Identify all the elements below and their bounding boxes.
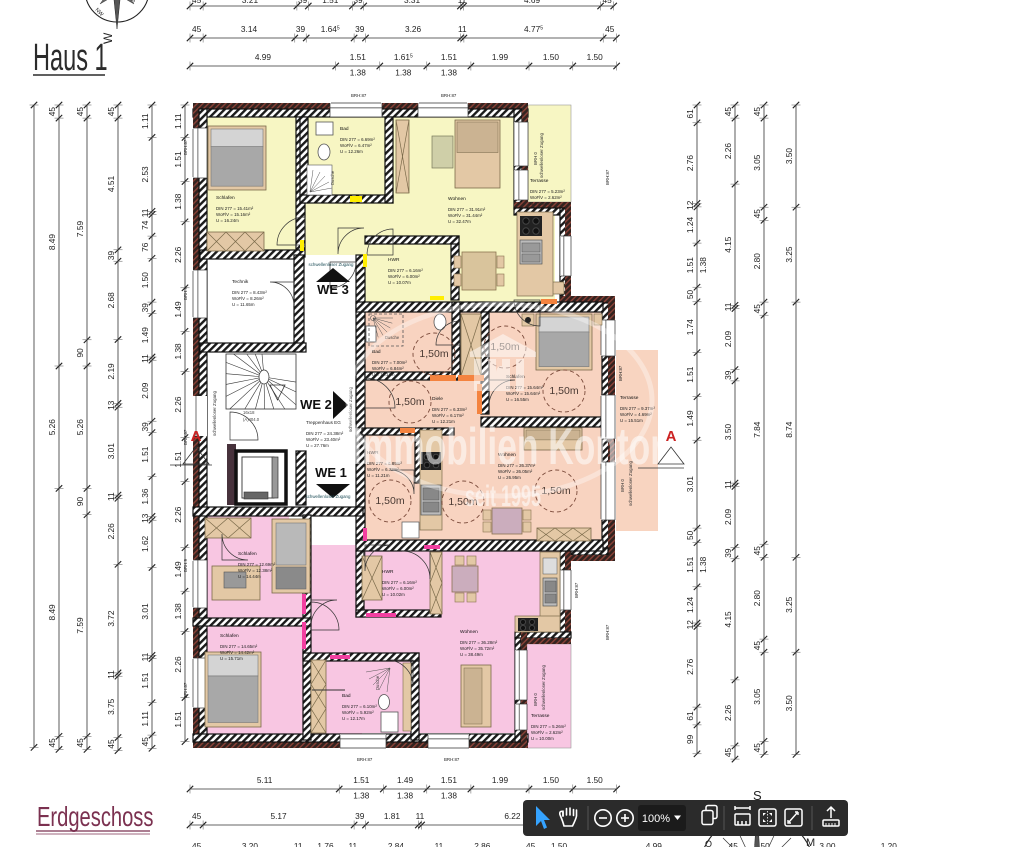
svg-text:11: 11 bbox=[458, 24, 467, 34]
svg-text:1.51: 1.51 bbox=[140, 446, 150, 463]
svg-text:11: 11 bbox=[294, 841, 303, 847]
svg-text:2.26: 2.26 bbox=[173, 506, 183, 523]
svg-text:U = 9.98m: U = 9.98m bbox=[530, 201, 551, 206]
svg-text:2.76: 2.76 bbox=[685, 155, 695, 172]
svg-text:WoFlV = 6.00m²: WoFlV = 6.00m² bbox=[388, 274, 420, 279]
svg-text:1.49: 1.49 bbox=[173, 301, 183, 318]
svg-text:2.26: 2.26 bbox=[106, 523, 116, 540]
svg-text:3.20: 3.20 bbox=[242, 841, 259, 847]
svg-text:1.50: 1.50 bbox=[587, 52, 604, 62]
svg-text:45: 45 bbox=[192, 841, 202, 847]
svg-text:WE 2: WE 2 bbox=[300, 397, 332, 412]
svg-text:1.99: 1.99 bbox=[492, 775, 509, 785]
svg-text:1.99: 1.99 bbox=[492, 52, 509, 62]
svg-text:11: 11 bbox=[106, 492, 116, 501]
svg-text:3.25: 3.25 bbox=[784, 596, 794, 613]
svg-text:5.26: 5.26 bbox=[47, 419, 57, 436]
svg-text:1.51: 1.51 bbox=[685, 257, 695, 274]
svg-text:2.84: 2.84 bbox=[388, 841, 405, 847]
svg-text:8.49: 8.49 bbox=[47, 604, 57, 621]
svg-text:39: 39 bbox=[296, 24, 306, 34]
svg-text:3.72: 3.72 bbox=[106, 610, 116, 627]
svg-text:45: 45 bbox=[192, 0, 202, 5]
svg-text:11: 11 bbox=[140, 354, 150, 363]
svg-text:DIN 277 = 15.41m²: DIN 277 = 15.41m² bbox=[216, 206, 254, 211]
svg-text:3.01: 3.01 bbox=[685, 476, 695, 493]
svg-text:Diele: Diele bbox=[432, 396, 443, 402]
svg-text:U = 11.65m: U = 11.65m bbox=[232, 302, 255, 307]
svg-text:BRH:87: BRH:87 bbox=[605, 624, 610, 640]
svg-text:(A)404.0: (A)404.0 bbox=[243, 417, 260, 422]
svg-text:DIN 277 = 6.69m²: DIN 277 = 6.69m² bbox=[340, 137, 375, 142]
svg-text:U = 27.76m: U = 27.76m bbox=[306, 443, 329, 448]
svg-text:BRH 0: BRH 0 bbox=[533, 693, 538, 706]
svg-text:2.09: 2.09 bbox=[723, 508, 733, 525]
svg-text:BRH:9: BRH:9 bbox=[183, 559, 188, 572]
svg-text:45: 45 bbox=[75, 107, 85, 117]
svg-text:8.74: 8.74 bbox=[784, 421, 794, 438]
svg-text:Haus 1: Haus 1 bbox=[33, 35, 108, 78]
svg-text:DIN 277 = 36.28m²: DIN 277 = 36.28m² bbox=[460, 640, 498, 645]
svg-text:U = 16.24m: U = 16.24m bbox=[216, 218, 239, 223]
svg-text:1.24: 1.24 bbox=[685, 217, 695, 234]
svg-text:1.51: 1.51 bbox=[173, 151, 183, 168]
svg-text:4.15: 4.15 bbox=[723, 611, 733, 628]
svg-text:2.26: 2.26 bbox=[723, 143, 733, 160]
svg-text:16x18: 16x18 bbox=[243, 410, 255, 415]
svg-text:U = 14.44m: U = 14.44m bbox=[238, 574, 261, 579]
svg-text:99: 99 bbox=[685, 734, 695, 744]
svg-text:schwellenloser Zugang: schwellenloser Zugang bbox=[212, 391, 217, 436]
svg-text:1.36: 1.36 bbox=[140, 488, 150, 505]
svg-text:45: 45 bbox=[752, 743, 762, 753]
svg-text:1,50m: 1,50m bbox=[419, 348, 448, 360]
svg-text:45: 45 bbox=[723, 107, 733, 117]
svg-text:U = 10.00m: U = 10.00m bbox=[531, 736, 554, 741]
svg-text:DIN 277 = 6.10m²: DIN 277 = 6.10m² bbox=[342, 704, 377, 709]
svg-text:WE 1: WE 1 bbox=[315, 465, 347, 480]
svg-text:1.11: 1.11 bbox=[140, 711, 150, 727]
svg-text:7.59: 7.59 bbox=[75, 221, 85, 238]
svg-text:45: 45 bbox=[752, 304, 762, 314]
svg-text:1.49: 1.49 bbox=[140, 327, 150, 344]
svg-text:U = 16.55m: U = 16.55m bbox=[506, 397, 529, 402]
svg-text:DIN 277 = 5.26m²: DIN 277 = 5.26m² bbox=[531, 724, 566, 729]
svg-text:U = 10.07m: U = 10.07m bbox=[388, 280, 411, 285]
svg-text:2.26: 2.26 bbox=[173, 396, 183, 413]
svg-text:1.51: 1.51 bbox=[353, 775, 370, 785]
svg-text:2.80: 2.80 bbox=[752, 253, 762, 270]
svg-text:3.05: 3.05 bbox=[752, 154, 762, 171]
svg-text:WE 3: WE 3 bbox=[317, 282, 349, 297]
svg-text:74: 74 bbox=[140, 220, 150, 230]
svg-text:11: 11 bbox=[723, 302, 733, 311]
svg-text:90: 90 bbox=[75, 497, 85, 507]
svg-text:11: 11 bbox=[458, 0, 467, 5]
svg-text:schwellenloser Zugang: schwellenloser Zugang bbox=[306, 494, 351, 499]
svg-text:BRH:87: BRH:87 bbox=[605, 169, 610, 185]
svg-text:1.49: 1.49 bbox=[685, 410, 695, 427]
svg-text:1.62: 1.62 bbox=[140, 535, 150, 552]
svg-text:DIN 277 = 8.43m²: DIN 277 = 8.43m² bbox=[232, 290, 267, 295]
svg-text:BRH:87: BRH:87 bbox=[444, 757, 460, 762]
svg-text:2.26: 2.26 bbox=[173, 656, 183, 673]
svg-text:6.22: 6.22 bbox=[504, 811, 521, 821]
svg-text:5.17: 5.17 bbox=[271, 811, 288, 821]
svg-text:11: 11 bbox=[140, 208, 150, 217]
svg-text:50: 50 bbox=[685, 290, 695, 300]
svg-text:4.51: 4.51 bbox=[106, 176, 116, 193]
svg-text:Erdgeschoss: Erdgeschoss bbox=[37, 802, 153, 833]
svg-text:45: 45 bbox=[140, 737, 150, 747]
svg-text:schwellenloser Zugang: schwellenloser Zugang bbox=[309, 262, 354, 267]
svg-text:1,50m: 1,50m bbox=[375, 495, 404, 507]
svg-text:1.51: 1.51 bbox=[441, 52, 458, 62]
svg-text:DIN 277 = 15.64m²: DIN 277 = 15.64m² bbox=[506, 385, 544, 390]
svg-text:1.51: 1.51 bbox=[140, 672, 150, 689]
svg-text:WoFlV = 2.62m²: WoFlV = 2.62m² bbox=[530, 195, 562, 200]
svg-text:DIN 277 = 7.00m²: DIN 277 = 7.00m² bbox=[372, 360, 407, 365]
svg-text:1.38: 1.38 bbox=[173, 193, 183, 210]
svg-text:Immobilien Kontor: Immobilien Kontor bbox=[352, 418, 664, 476]
svg-text:WoFlV = 31.44m²: WoFlV = 31.44m² bbox=[448, 213, 483, 218]
svg-text:45: 45 bbox=[729, 841, 739, 847]
svg-text:U = 11.14m: U = 11.14m bbox=[372, 372, 395, 377]
svg-text:schwellenloser Zugang: schwellenloser Zugang bbox=[539, 133, 544, 178]
svg-text:8.49: 8.49 bbox=[47, 234, 57, 251]
svg-text:1.50: 1.50 bbox=[543, 775, 560, 785]
svg-text:2.80: 2.80 bbox=[752, 590, 762, 607]
svg-text:U = 38.49m: U = 38.49m bbox=[460, 652, 483, 657]
svg-text:WoFlV = 14.42m²: WoFlV = 14.42m² bbox=[220, 650, 255, 655]
svg-text:3.50: 3.50 bbox=[784, 695, 794, 712]
svg-text:1.49: 1.49 bbox=[397, 775, 414, 785]
svg-text:DIN 277 = 6.16m²: DIN 277 = 6.16m² bbox=[388, 268, 423, 273]
svg-text:Wohnen: Wohnen bbox=[460, 629, 478, 635]
svg-text:45: 45 bbox=[106, 107, 116, 117]
svg-text:45: 45 bbox=[47, 107, 57, 117]
svg-text:3.50: 3.50 bbox=[784, 148, 794, 165]
svg-text:BRH:87: BRH:87 bbox=[351, 93, 367, 98]
svg-text:WoFlV = 5.92m²: WoFlV = 5.92m² bbox=[342, 710, 374, 715]
svg-text:3.14: 3.14 bbox=[241, 24, 258, 34]
svg-text:Schlafen: Schlafen bbox=[220, 633, 239, 639]
svg-text:1.50: 1.50 bbox=[140, 272, 150, 289]
svg-text:WoFlV = 15.16m²: WoFlV = 15.16m² bbox=[216, 212, 251, 217]
svg-text:Terrasse: Terrasse bbox=[620, 395, 639, 401]
svg-text:1.50: 1.50 bbox=[543, 52, 560, 62]
svg-text:O: O bbox=[705, 839, 712, 847]
svg-text:2.09: 2.09 bbox=[140, 382, 150, 399]
svg-text:11: 11 bbox=[416, 811, 425, 821]
svg-text:1.51: 1.51 bbox=[173, 711, 183, 728]
svg-text:39: 39 bbox=[140, 303, 150, 313]
svg-text:45: 45 bbox=[526, 841, 536, 847]
svg-text:11: 11 bbox=[140, 652, 150, 661]
svg-text:Bad: Bad bbox=[342, 693, 351, 699]
svg-text:M: M bbox=[806, 837, 815, 847]
svg-text:100%: 100% bbox=[642, 813, 670, 825]
svg-text:5.11: 5.11 bbox=[257, 775, 273, 785]
svg-text:U = 12.26m: U = 12.26m bbox=[340, 149, 363, 154]
svg-text:1.38: 1.38 bbox=[441, 68, 458, 78]
svg-text:1.38: 1.38 bbox=[350, 68, 367, 78]
svg-text:45: 45 bbox=[106, 739, 116, 749]
svg-text:WoFlV = 12.38m²: WoFlV = 12.38m² bbox=[238, 568, 273, 573]
svg-text:1.38: 1.38 bbox=[173, 603, 183, 620]
svg-text:DIN 277 = 24.38m²: DIN 277 = 24.38m² bbox=[306, 431, 344, 436]
svg-text:BRH:9: BRH:9 bbox=[183, 287, 188, 300]
svg-text:1.38: 1.38 bbox=[698, 257, 708, 274]
svg-text:45: 45 bbox=[47, 738, 57, 748]
svg-text:BRH:87: BRH:87 bbox=[574, 582, 579, 598]
svg-text:39: 39 bbox=[355, 24, 365, 34]
svg-text:90: 90 bbox=[75, 348, 85, 358]
svg-text:39: 39 bbox=[723, 370, 733, 380]
svg-text:3.01: 3.01 bbox=[140, 603, 150, 620]
svg-text:45: 45 bbox=[602, 0, 612, 5]
svg-text:1,50m: 1,50m bbox=[395, 396, 424, 408]
svg-text:39: 39 bbox=[140, 422, 150, 432]
svg-text:13: 13 bbox=[106, 400, 116, 410]
svg-text:1.50: 1.50 bbox=[551, 841, 568, 847]
svg-text:BRH:87: BRH:87 bbox=[357, 757, 373, 762]
svg-text:2.26: 2.26 bbox=[173, 246, 183, 263]
svg-text:Schlafen: Schlafen bbox=[216, 195, 235, 201]
svg-text:Schlafen: Schlafen bbox=[238, 551, 257, 557]
svg-text:Bad: Bad bbox=[340, 126, 349, 132]
svg-text:3.25: 3.25 bbox=[784, 246, 794, 263]
svg-text:1.38: 1.38 bbox=[173, 343, 183, 360]
svg-text:12: 12 bbox=[685, 200, 695, 210]
svg-text:2.19: 2.19 bbox=[106, 363, 116, 380]
svg-text:1.38: 1.38 bbox=[698, 556, 708, 573]
svg-text:1.51: 1.51 bbox=[685, 366, 695, 383]
svg-text:WoFlV = 6.47m²: WoFlV = 6.47m² bbox=[340, 143, 372, 148]
svg-text:3.01: 3.01 bbox=[106, 443, 116, 460]
svg-text:11: 11 bbox=[723, 480, 733, 489]
svg-text:1.49: 1.49 bbox=[173, 561, 183, 578]
svg-text:1.11: 1.11 bbox=[173, 113, 183, 129]
svg-text:Terrasse: Terrasse bbox=[531, 713, 550, 719]
svg-text:WoFlV = 23.40m²: WoFlV = 23.40m² bbox=[306, 437, 341, 442]
svg-text:45: 45 bbox=[605, 24, 615, 34]
svg-text:7.84: 7.84 bbox=[752, 421, 762, 438]
svg-text:1.38: 1.38 bbox=[441, 791, 458, 801]
svg-text:45: 45 bbox=[752, 209, 762, 219]
svg-text:BRH:87: BRH:87 bbox=[183, 429, 188, 445]
svg-text:39: 39 bbox=[106, 251, 116, 261]
svg-text:BRH:87: BRH:87 bbox=[183, 682, 188, 698]
svg-text:BRH:87: BRH:87 bbox=[441, 93, 457, 98]
svg-text:50: 50 bbox=[685, 530, 695, 540]
svg-text:3.21: 3.21 bbox=[242, 0, 259, 5]
svg-text:61: 61 bbox=[685, 109, 695, 119]
svg-text:BRH:87: BRH:87 bbox=[618, 365, 623, 381]
svg-text:4.99: 4.99 bbox=[255, 52, 272, 62]
svg-text:3.05: 3.05 bbox=[752, 688, 762, 705]
svg-text:A: A bbox=[191, 428, 202, 445]
svg-text:45: 45 bbox=[752, 641, 762, 651]
svg-text:DIN 277 = 5.23m²: DIN 277 = 5.23m² bbox=[530, 189, 565, 194]
svg-text:3.50: 3.50 bbox=[723, 424, 733, 441]
svg-text:1.24: 1.24 bbox=[685, 596, 695, 613]
svg-text:4.69: 4.69 bbox=[524, 0, 541, 5]
svg-text:2.09: 2.09 bbox=[723, 331, 733, 348]
svg-text:39: 39 bbox=[723, 548, 733, 558]
svg-text:39: 39 bbox=[355, 811, 365, 821]
svg-text:45: 45 bbox=[75, 738, 85, 748]
svg-text:WoFlV = 6.00m²: WoFlV = 6.00m² bbox=[382, 586, 414, 591]
svg-text:76: 76 bbox=[140, 242, 150, 252]
svg-text:1.51: 1.51 bbox=[685, 556, 695, 573]
svg-text:HWR: HWR bbox=[388, 257, 400, 263]
svg-text:U = 10.02m: U = 10.02m bbox=[382, 592, 405, 597]
svg-text:A: A bbox=[666, 428, 677, 445]
svg-text:2.26: 2.26 bbox=[723, 704, 733, 721]
svg-text:1.51: 1.51 bbox=[441, 775, 458, 785]
svg-text:11: 11 bbox=[106, 670, 116, 679]
svg-text:schwellenloser Zugang: schwellenloser Zugang bbox=[541, 665, 546, 710]
svg-text:4.15: 4.15 bbox=[723, 236, 733, 253]
svg-text:45: 45 bbox=[752, 107, 762, 117]
svg-text:DIN 277 = 6.16m²: DIN 277 = 6.16m² bbox=[382, 580, 417, 585]
svg-text:1.81: 1.81 bbox=[384, 811, 401, 821]
svg-text:45: 45 bbox=[752, 546, 762, 556]
svg-text:2.53: 2.53 bbox=[140, 166, 150, 183]
svg-text:11: 11 bbox=[348, 841, 357, 847]
svg-text:DIN 277 = 12.69m²: DIN 277 = 12.69m² bbox=[238, 562, 276, 567]
svg-text:45: 45 bbox=[723, 748, 733, 758]
svg-text:1.74: 1.74 bbox=[685, 319, 695, 336]
svg-text:2.86: 2.86 bbox=[474, 841, 491, 847]
svg-text:WoFlV = 15.64m²: WoFlV = 15.64m² bbox=[506, 391, 541, 396]
svg-text:1,50m: 1,50m bbox=[549, 385, 578, 397]
svg-text:HWR: HWR bbox=[382, 569, 394, 575]
svg-text:39: 39 bbox=[298, 0, 308, 5]
svg-text:3.26: 3.26 bbox=[405, 24, 422, 34]
svg-text:2.76: 2.76 bbox=[685, 658, 695, 675]
svg-text:1.38: 1.38 bbox=[395, 68, 412, 78]
svg-text:U = 12.17m: U = 12.17m bbox=[342, 716, 365, 721]
svg-text:DIN 277 = 6.33m²: DIN 277 = 6.33m² bbox=[432, 407, 467, 412]
svg-text:DIN 277 = 31.91m²: DIN 277 = 31.91m² bbox=[448, 207, 486, 212]
svg-text:WoFlV = 8.26m²: WoFlV = 8.26m² bbox=[232, 296, 264, 301]
svg-text:5.26: 5.26 bbox=[75, 419, 85, 436]
svg-text:3.31: 3.31 bbox=[404, 0, 421, 5]
svg-text:39: 39 bbox=[353, 0, 363, 5]
svg-text:45: 45 bbox=[192, 811, 202, 821]
svg-text:1.38: 1.38 bbox=[397, 791, 414, 801]
svg-text:1.11: 1.11 bbox=[140, 113, 150, 129]
svg-text:1.76: 1.76 bbox=[317, 841, 334, 847]
svg-text:Treppenhaus EG: Treppenhaus EG bbox=[306, 420, 341, 425]
svg-text:Dusche: Dusche bbox=[330, 170, 335, 185]
svg-text:1.20: 1.20 bbox=[881, 841, 898, 847]
svg-text:1.50: 1.50 bbox=[587, 775, 604, 785]
svg-text:WoFlV = 2.62m²: WoFlV = 2.62m² bbox=[531, 730, 563, 735]
svg-text:1.38: 1.38 bbox=[353, 791, 370, 801]
svg-text:13: 13 bbox=[140, 513, 150, 523]
svg-text:1.51: 1.51 bbox=[350, 52, 367, 62]
svg-text:BRH 0: BRH 0 bbox=[533, 152, 538, 165]
svg-text:12: 12 bbox=[685, 620, 695, 630]
svg-text:1.51: 1.51 bbox=[322, 0, 339, 5]
svg-text:BRH 0: BRH 0 bbox=[620, 479, 625, 492]
svg-text:U = 32.47m: U = 32.47m bbox=[448, 219, 471, 224]
svg-text:Wohnen: Wohnen bbox=[448, 196, 466, 202]
svg-text:seit 1995: seit 1995 bbox=[465, 480, 541, 513]
svg-text:Technik: Technik bbox=[232, 279, 249, 285]
svg-text:2.68: 2.68 bbox=[106, 292, 116, 309]
svg-text:3.00: 3.00 bbox=[819, 841, 836, 847]
svg-text:3.75: 3.75 bbox=[106, 698, 116, 715]
svg-text:BRH:87: BRH:87 bbox=[183, 139, 188, 155]
svg-text:7.59: 7.59 bbox=[75, 617, 85, 634]
svg-text:WoFlV = 6.84m²: WoFlV = 6.84m² bbox=[372, 366, 404, 371]
svg-text:WoFlV = 35.72m²: WoFlV = 35.72m² bbox=[460, 646, 495, 651]
svg-text:11: 11 bbox=[435, 841, 444, 847]
svg-text:61: 61 bbox=[685, 711, 695, 721]
svg-text:DIN 277 = 14.65m²: DIN 277 = 14.65m² bbox=[220, 644, 258, 649]
svg-text:45: 45 bbox=[192, 24, 202, 34]
svg-text:U = 15.71m: U = 15.71m bbox=[220, 656, 243, 661]
svg-text:4.99: 4.99 bbox=[646, 841, 663, 847]
